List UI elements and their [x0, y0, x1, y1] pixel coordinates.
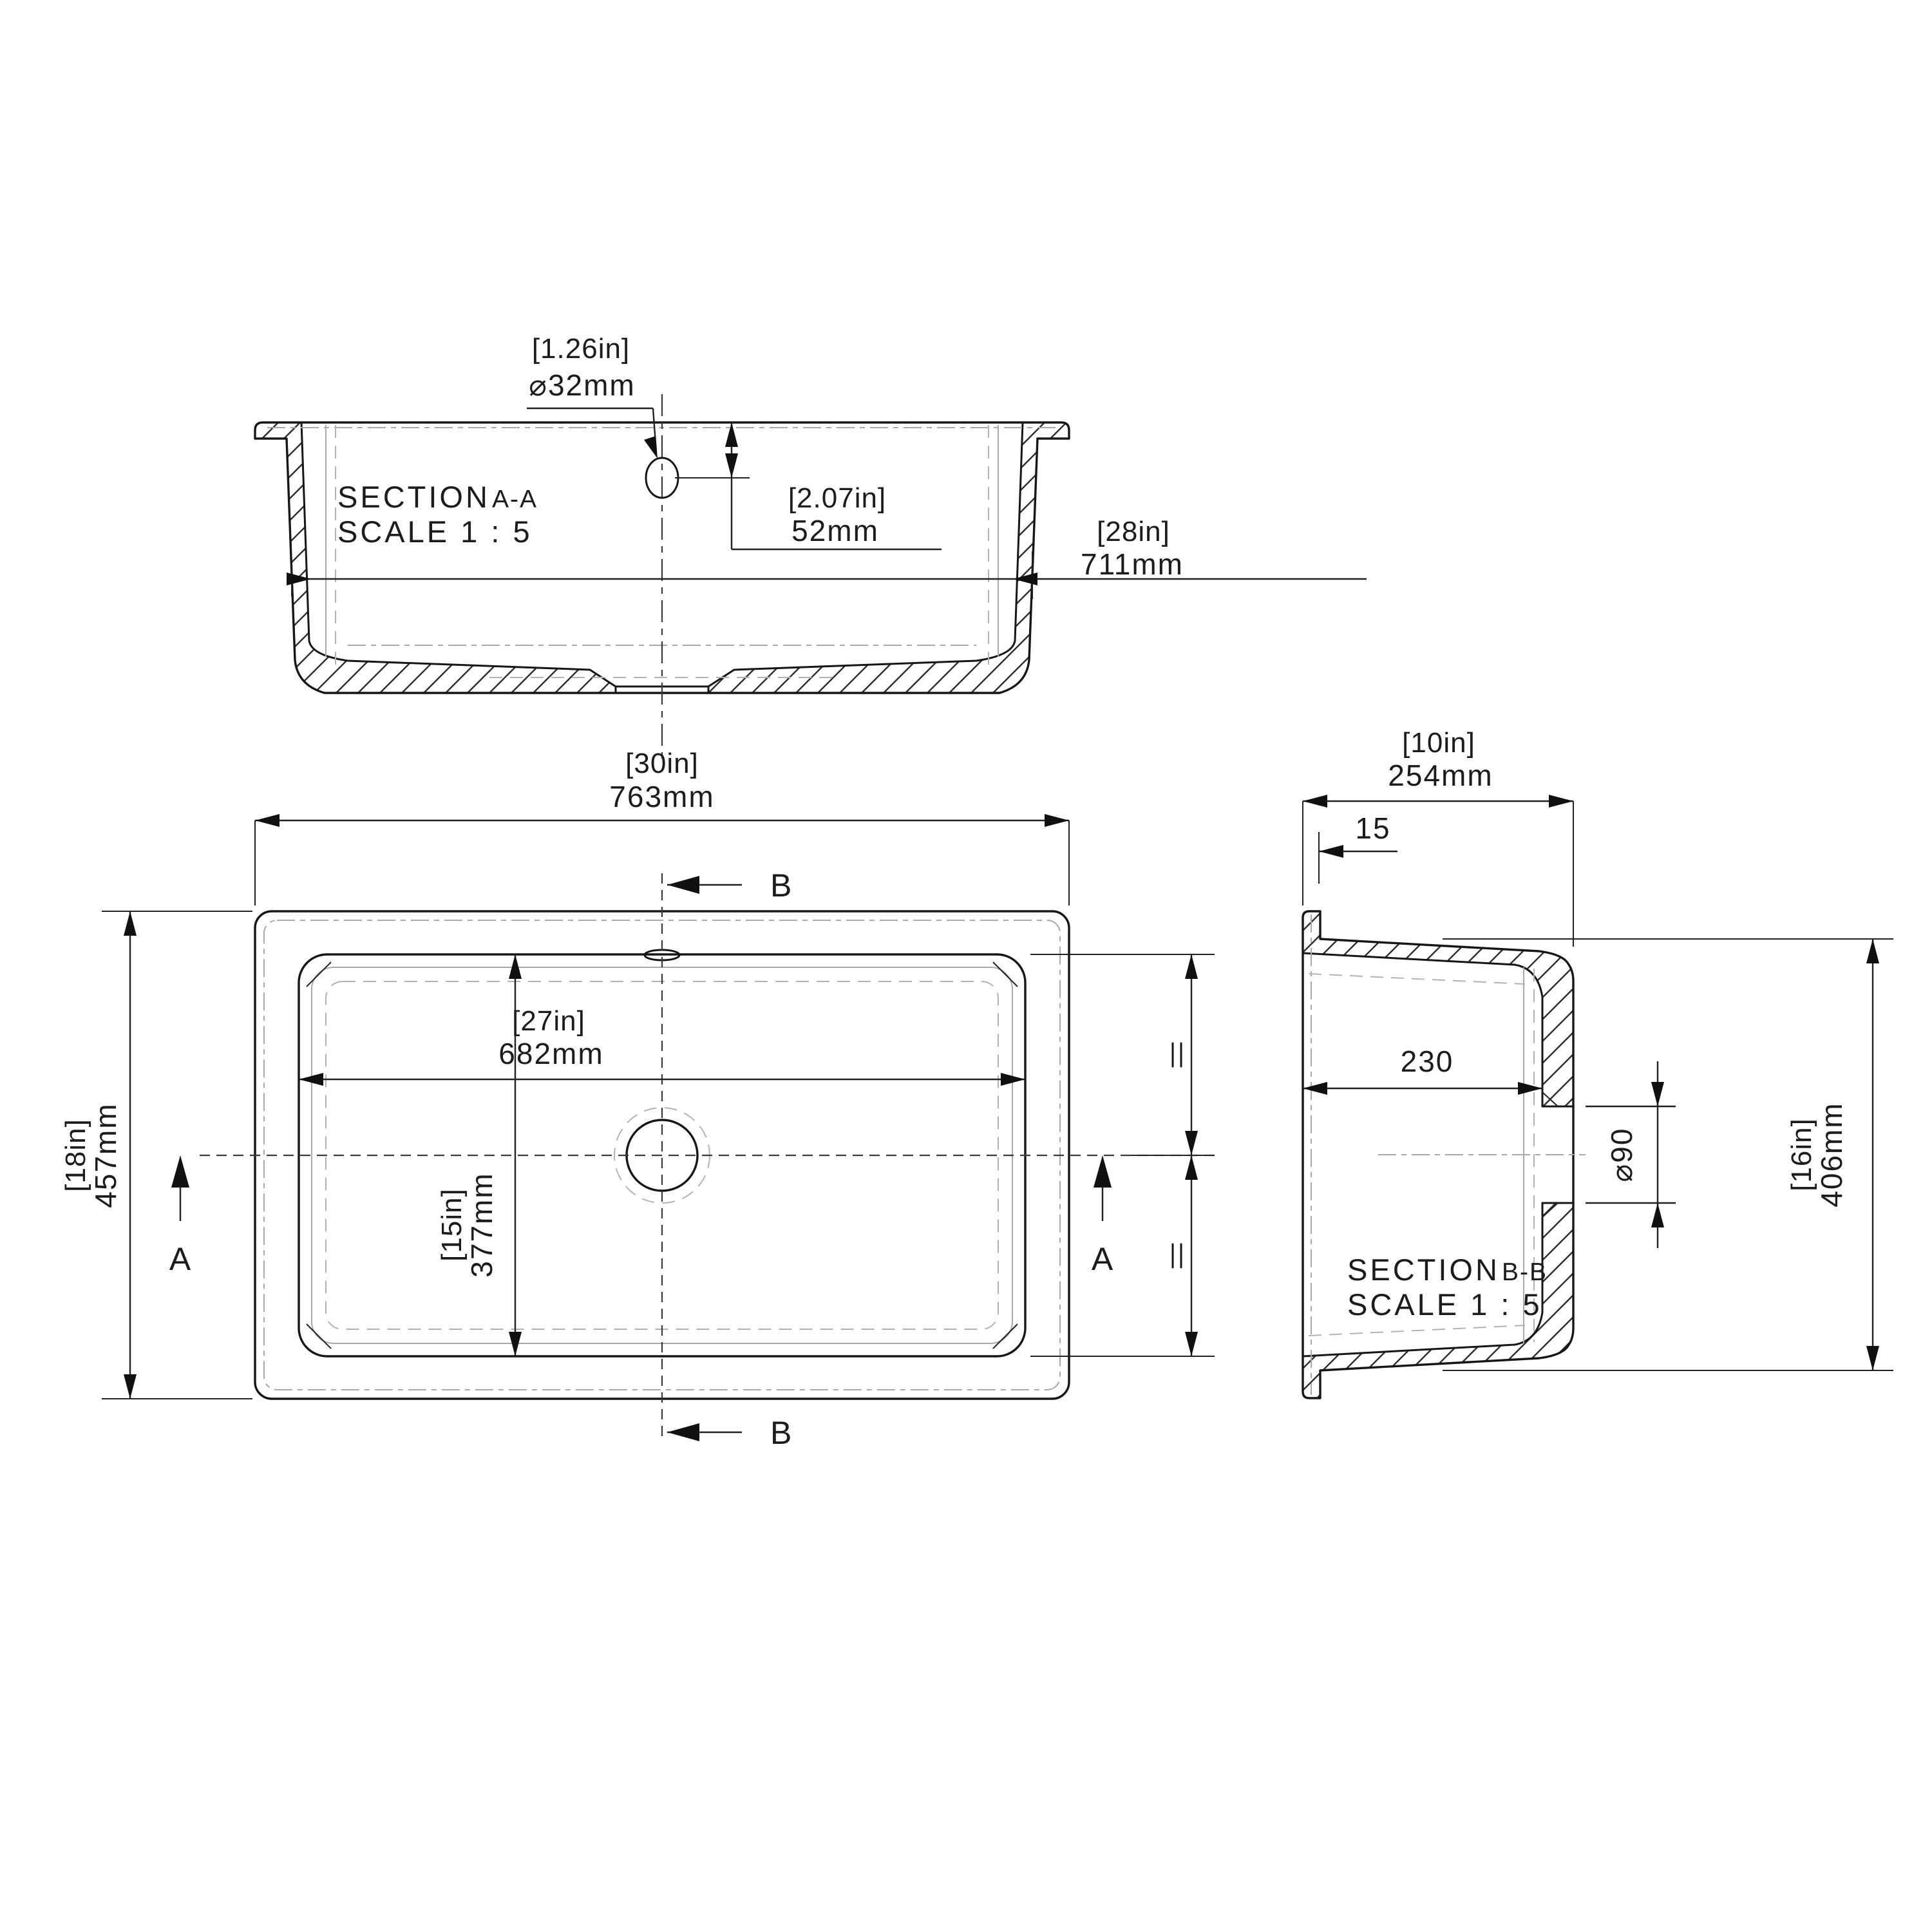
dim-406-bracket-label: [16in] [1786, 1118, 1817, 1191]
dim-equal-arrow-mid-lower [1185, 1155, 1198, 1180]
cut-label-a-right: A [1092, 1241, 1113, 1277]
dim-406-arrow-bottom [1866, 1346, 1879, 1370]
dim-457-arrow-top [124, 911, 137, 936]
dim-230-label: 230 [1401, 1045, 1454, 1078]
section-aa-view: [1.26in] ⌀32mm [2.07in] 52mm [28in] 711m… [255, 333, 1367, 761]
drain-dia-bracket-label: [1.26in] [532, 333, 630, 365]
section-aa-scale: SCALE 1 : 5 [337, 515, 533, 549]
dim-230-arrow-left [1303, 1082, 1327, 1095]
dim-52-mm-label: 52mm [791, 514, 879, 547]
bb-inner-hidden-bottom [1309, 1325, 1525, 1336]
bowl-chamfer-tr [993, 962, 1018, 987]
drain-leader-arrow [644, 436, 658, 459]
dim-90-arrow-bottom [1651, 1203, 1664, 1227]
dim-406-mm-label: 406mm [1815, 1102, 1848, 1207]
drain-dia-mm-label: ⌀32mm [529, 368, 636, 402]
bb-inner-hidden-top [1309, 974, 1525, 984]
dim-457-bracket-label: [18in] [60, 1119, 91, 1192]
dim-equal-arrow-top [1185, 954, 1198, 979]
dim-52-arrow-top [725, 422, 738, 447]
cut-arrow-b-bottom [667, 1423, 742, 1441]
dim-763-mm-label: 763mm [609, 780, 714, 813]
cut-arrow-b-top [667, 876, 742, 894]
dim-254-arrow-left [1303, 795, 1327, 808]
equal-mark-upper [1173, 1043, 1181, 1066]
dim-457-mm-label: 457mm [89, 1103, 122, 1207]
dim-457-arrow-bottom [124, 1374, 137, 1399]
cut-label-b-bottom: B [770, 1415, 792, 1451]
dim-763-arrow-left [255, 814, 279, 827]
drawing-sheet: [1.26in] ⌀32mm [2.07in] 52mm [28in] 711m… [0, 0, 1932, 1932]
bowl-chamfer-br [993, 1324, 1018, 1349]
dim-90-label: ⌀90 [1605, 1128, 1638, 1182]
cut-arrow-a-left [171, 1155, 189, 1221]
dim-15-arrow [1319, 845, 1343, 858]
bowl-chamfer-bl [307, 1324, 331, 1349]
dim-equal-arrow-mid-upper [1185, 1131, 1198, 1155]
cut-label-a-left: A [169, 1241, 191, 1277]
dim-52-bracket-label: [2.07in] [788, 482, 886, 514]
section-aa-title: SECTION [337, 480, 490, 514]
dim-711-mm-label: 711mm [1081, 547, 1184, 581]
dim-682-bracket-label: [27in] [512, 1005, 585, 1037]
dim-763-arrow-right [1045, 814, 1069, 827]
section-aa-title-suffix: A-A [492, 486, 538, 513]
cad-drawing: [1.26in] ⌀32mm [2.07in] 52mm [28in] 711m… [0, 0, 1932, 1932]
dim-254-arrow-right [1549, 795, 1573, 808]
dim-711-bracket-label: [28in] [1097, 516, 1170, 547]
dim-52-arrow-bottom [725, 453, 738, 478]
section-bb-view: [10in] 254mm 15 230 ⌀90 [16in] 406mm [1303, 727, 1893, 1398]
dim-254-mm-label: 254mm [1388, 759, 1493, 792]
bowl-chamfer-tl [307, 962, 331, 987]
section-bb-title-suffix: B-B [1502, 1258, 1548, 1286]
equal-mark-lower [1173, 1244, 1181, 1267]
cut-label-b-top: B [770, 867, 792, 904]
dim-377-mm-label: 377mm [465, 1172, 498, 1277]
dim-254-bracket-label: [10in] [1402, 727, 1475, 759]
dim-equal-arrow-bottom [1185, 1332, 1198, 1356]
dim-15-label: 15 [1355, 811, 1390, 845]
dim-377-bracket-label: [15in] [436, 1188, 468, 1262]
dim-230-arrow-right [1518, 1082, 1542, 1095]
section-bb-title: SECTION [1347, 1253, 1500, 1287]
dim-763-bracket-label: [30in] [625, 748, 699, 779]
dim-406-arrow-top [1866, 939, 1879, 963]
section-bb-scale: SCALE 1 : 5 [1347, 1287, 1542, 1321]
plan-view: [30in] 763mm [18in] 457mm [27in] 682mm [… [60, 748, 1215, 1451]
cut-arrow-a-right [1094, 1155, 1112, 1221]
dim-90-arrow-top [1651, 1082, 1664, 1106]
